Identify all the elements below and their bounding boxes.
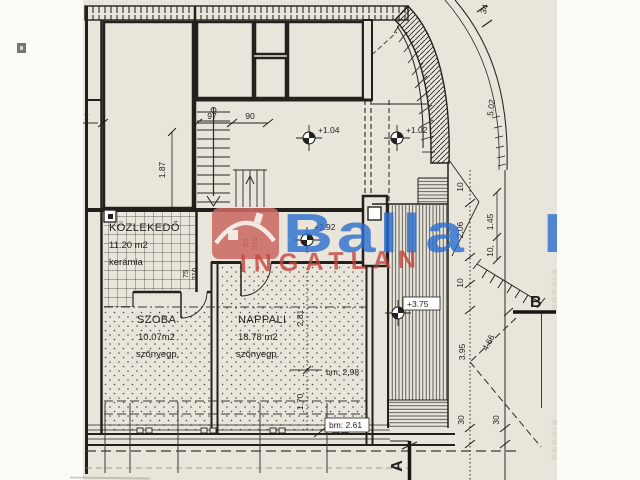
column-marker (104, 210, 116, 222)
elevation-102-label: +1.02 (406, 125, 428, 135)
dim-145: 1.45 (485, 213, 495, 230)
szoba-floor: szőnyegp. (136, 349, 179, 360)
floorplan-drawing: KÖZLEKEDŐ 11.20 m2 kerámia SZOBA 10.07m2… (0, 0, 640, 480)
szoba-area: 10.07m2 (138, 332, 175, 343)
dim-10-mid: 10, (485, 245, 495, 257)
szoba-carpet-hatch (104, 309, 211, 431)
dim-97: 97 (207, 111, 217, 121)
dim-10-top: 10 (455, 182, 465, 192)
dim-bm-298: bm: 2.98 (326, 367, 359, 377)
watermark-subtitle: INGATLAN (239, 245, 423, 278)
elevation-375-label: +3.75 (407, 299, 429, 309)
dim-90: 90 (245, 111, 255, 121)
kozlekedo-floor: kerámia (109, 257, 144, 268)
dim-395: 3.95 (457, 343, 467, 360)
dim-170: 1.70 (295, 393, 305, 410)
section-b-label: B (530, 294, 542, 311)
section-a-label: A (389, 460, 406, 472)
scan-edge-smudge (70, 478, 150, 479)
door-75-height: 210 (190, 268, 199, 281)
floorplan-photo: KÖZLEKEDŐ 11.20 m2 kerámia SZOBA 10.07m2… (0, 0, 640, 480)
dim-502: 5.02 (485, 99, 497, 117)
nappali-floor: szőnyegp. (236, 349, 279, 360)
right-margin (557, 0, 640, 480)
dim-281: 2.81 (295, 309, 305, 326)
dim-30-left: 30 (456, 415, 466, 425)
door-75-width: 75 (181, 270, 190, 278)
kozlekedo-name: KÖZLEKEDŐ (109, 220, 180, 234)
nappali-name: NAPPALI (238, 314, 286, 326)
dim-30-right: 30 (491, 415, 501, 425)
dim-7-cut: 7 (84, 112, 89, 122)
punch-hole-mark (17, 43, 26, 53)
dim-187: 1.87 (157, 161, 167, 178)
kozlekedo-area: 11.20 m2 (109, 240, 148, 251)
dim-10-low: 10 (455, 278, 465, 288)
left-margin (0, 0, 83, 480)
elevation-104-label: +1.04 (318, 125, 340, 135)
szoba-name: SZOBA (137, 314, 177, 326)
nappali-area: 18.78 m2 (238, 332, 278, 343)
dim-bm-261: bm: 2.61 (329, 420, 362, 430)
